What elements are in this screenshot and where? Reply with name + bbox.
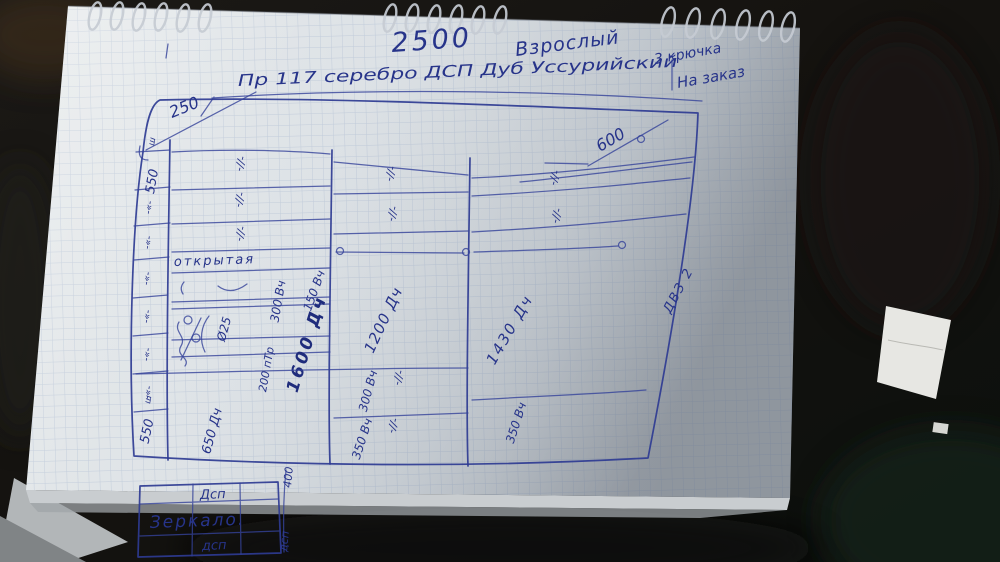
mirror-top-panel-label: Дсп [199, 487, 227, 503]
strip-note-top: ш [147, 137, 158, 147]
overall-width-label: 2500 [390, 22, 473, 59]
mirror-label: Зеркало. [149, 510, 245, 533]
mirror-bottom-panel-label: дсп [201, 538, 228, 554]
leather-fold-right [810, 30, 990, 330]
ditto-cell-mark: -«- [142, 235, 155, 250]
ditto-cell-mark: -«- [141, 309, 154, 324]
paper-speck [932, 422, 948, 434]
ditto-cell-mark: -«- [141, 271, 154, 286]
ditto-cell-mark: -«- [143, 200, 156, 215]
ditto-cell-mark: -«- [142, 385, 155, 400]
sketch-drawing: 2500 Взрослый 3 крючка На заказ Пр 117 с… [0, 0, 1000, 562]
open-section-label: открытая [174, 252, 256, 270]
photo-of-sketch: 2500 Взрослый 3 крючка На заказ Пр 117 с… [0, 0, 1000, 562]
mirror-side-height-label: 400 [281, 466, 296, 488]
ditto-cell-mark: -«- [141, 347, 154, 362]
